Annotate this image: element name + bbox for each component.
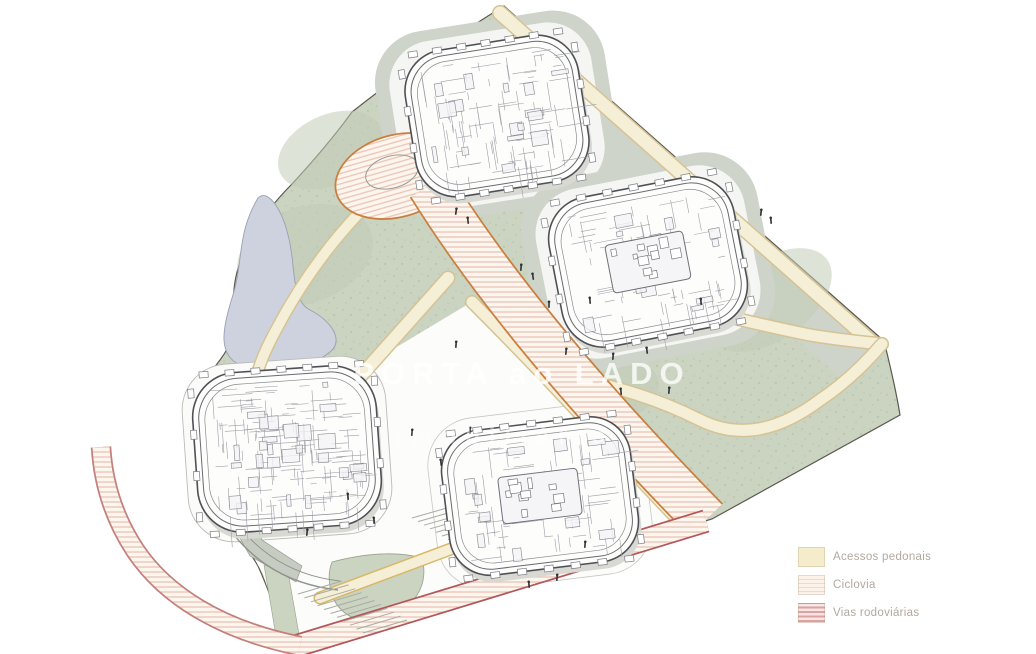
building-south	[433, 408, 652, 587]
site-plan-page: PORTA ao LADO imobiliária Acessos pedona…	[0, 0, 1036, 654]
legend-item-pedestrian-access: Acessos pedonais	[798, 546, 931, 567]
roads-swatch-icon	[798, 603, 825, 623]
legend-label-bike-lane: Ciclovia	[833, 579, 876, 591]
legend-label-pedestrian-access: Acessos pedonais	[833, 551, 931, 563]
pedestrian-access-swatch-icon	[798, 547, 825, 567]
bike-lane-swatch-icon	[798, 575, 825, 595]
building-west	[186, 360, 388, 550]
legend: Acessos pedonais Ciclovia Vias rodoviári…	[798, 546, 931, 630]
legend-item-roads: Vias rodoviárias	[798, 602, 931, 623]
legend-label-roads: Vias rodoviárias	[833, 607, 919, 619]
legend-item-bike-lane: Ciclovia	[798, 574, 931, 595]
